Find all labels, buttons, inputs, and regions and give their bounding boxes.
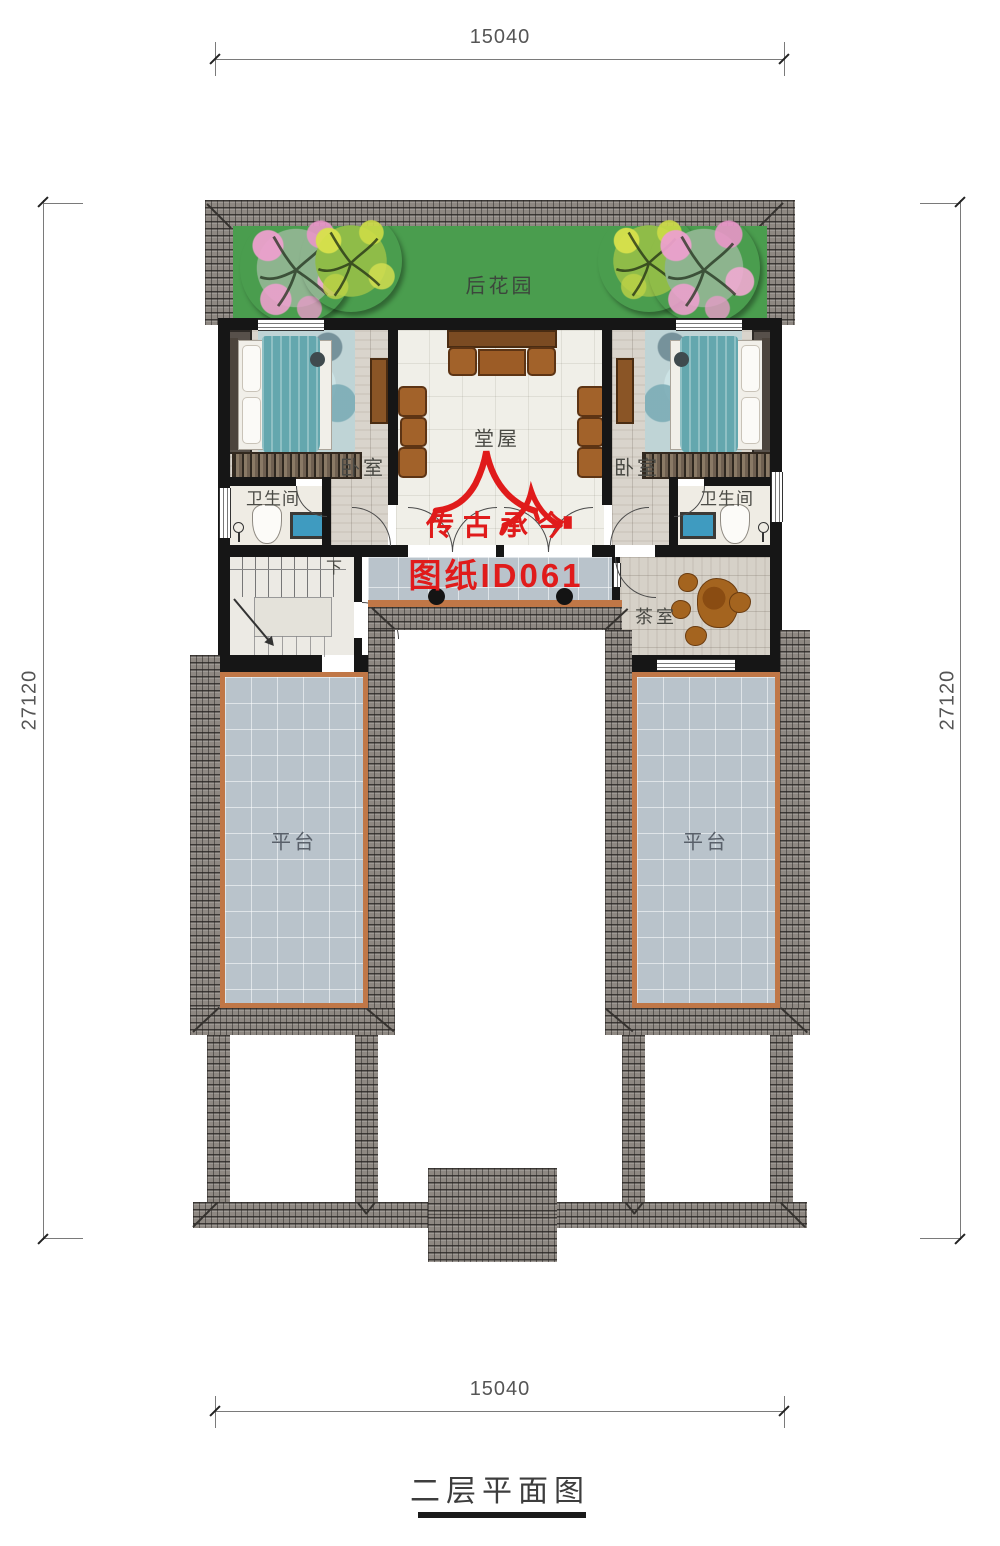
floor-plan-drawing: 15040 27120 27120 后花园: [0, 0, 1000, 1546]
courtyard-roof-right: [605, 630, 632, 1008]
drawing-title: 二层平面图: [410, 1466, 590, 1510]
bathroom-right-label: 卫生间: [700, 485, 754, 510]
dim-bottom-line: [215, 1411, 785, 1412]
pillow: [242, 345, 261, 392]
wall-mid-right-b: [655, 545, 782, 557]
bedroom-left-label: 卧室: [340, 452, 386, 481]
pillow: [242, 397, 261, 444]
dim-left-ext-top: [43, 203, 83, 204]
dim-left-line: [43, 200, 44, 1240]
bed-blanket: [680, 336, 738, 454]
wall-hall-left: [388, 330, 398, 505]
dim-left-value: 27120: [19, 670, 42, 731]
court-wall-pillar: [622, 1035, 645, 1205]
side-cabinet: [616, 358, 634, 424]
wall-mid-right-a: [592, 545, 615, 557]
floor-drain-stem: [238, 532, 240, 542]
dim-top-value: 15040: [470, 26, 531, 49]
watermark-sheet-id: 图纸ID061: [408, 549, 583, 597]
court-wall-pillar: [355, 1035, 378, 1205]
wing-right-roof-bottom: [605, 1008, 810, 1035]
console-table: [447, 330, 557, 348]
side-cabinet: [370, 358, 388, 424]
tree-icon: [648, 212, 760, 324]
armchair: [448, 347, 477, 376]
courtyard-roof-left: [368, 630, 395, 1008]
window: [258, 319, 324, 331]
window: [771, 472, 783, 522]
armchair: [398, 386, 427, 417]
dim-right-value: 27120: [937, 670, 960, 731]
terrace-right-label: 平台: [683, 826, 729, 855]
title-underline: [418, 1512, 586, 1518]
wall-mid-left: [218, 545, 408, 557]
dim-top-line: [215, 59, 785, 60]
tree-icon: [300, 210, 402, 312]
dim-right-ext-bottom: [920, 1238, 960, 1239]
pillow: [741, 397, 760, 444]
window: [219, 488, 231, 538]
armchair: [577, 417, 604, 447]
pillow: [741, 345, 760, 392]
wardrobe: [642, 452, 772, 479]
stair-landing: [254, 597, 332, 637]
watermark-brand: 传古承今: [426, 504, 574, 544]
floor-drain-icon: [758, 522, 769, 533]
bathroom-left-label: 卫生间: [246, 485, 300, 510]
cushion: [674, 352, 689, 367]
court-wall-pillar: [207, 1035, 230, 1205]
courtyard-roof-top: [368, 607, 622, 630]
window: [676, 319, 742, 331]
terrace-left-label: 平台: [271, 826, 317, 855]
sink: [680, 512, 716, 539]
dim-bottom-value: 15040: [470, 1378, 531, 1401]
wing-left-roof-outer: [190, 655, 220, 1035]
court-wall-pillar: [770, 1035, 793, 1205]
wall-stair-bottom-a: [218, 655, 322, 672]
armchair: [400, 417, 427, 447]
balcony-trim: [368, 600, 622, 607]
gate-ridge-line: [428, 1214, 557, 1215]
wing-right-roof-outer: [780, 630, 810, 1035]
gate-roof: [428, 1168, 557, 1262]
bed-headboard: [762, 338, 770, 450]
dim-right-ext-top: [920, 203, 960, 204]
wall-hall-right: [602, 330, 612, 505]
tea-room-label: 茶室: [635, 603, 677, 629]
wall-stair-side-a: [354, 557, 362, 602]
stairs-down-label: 下: [326, 554, 342, 578]
cushion: [310, 352, 325, 367]
wall-stair-bottom-b: [356, 655, 368, 672]
armchair: [527, 347, 556, 376]
tea-table: [478, 349, 526, 376]
window: [657, 659, 735, 671]
wing-left-roof-bottom: [190, 1008, 395, 1035]
bed-headboard: [230, 338, 238, 450]
bedroom-right-label: 卧室: [614, 452, 660, 481]
dim-left-ext-bottom: [43, 1238, 83, 1239]
dim-right-line: [960, 200, 961, 1240]
armchair: [398, 447, 427, 478]
floor-drain-stem: [762, 532, 764, 542]
garden-label: 后花园: [466, 270, 535, 299]
